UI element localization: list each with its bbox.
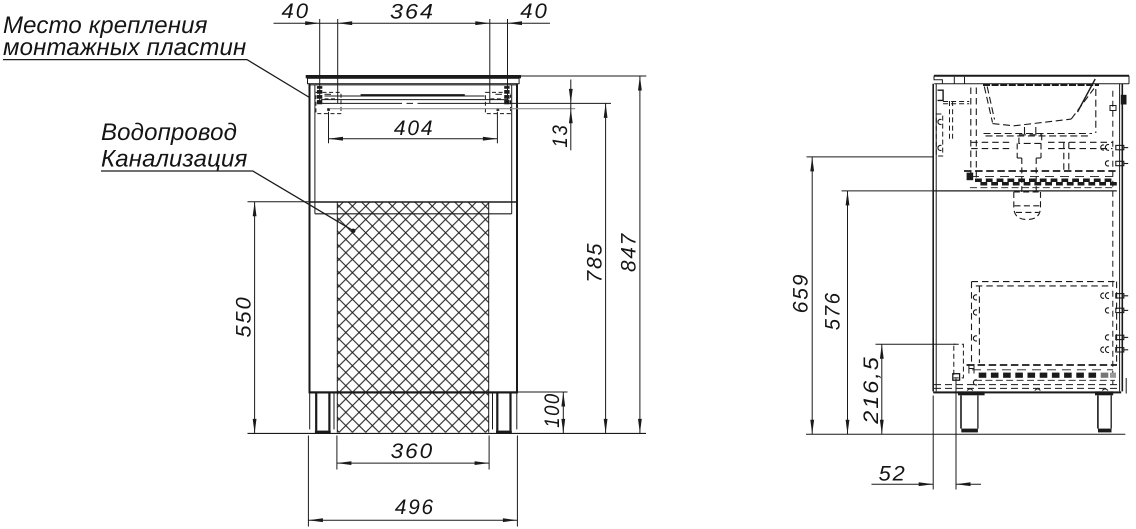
svg-text:785: 785 xyxy=(584,242,607,283)
svg-text:40: 40 xyxy=(282,0,311,23)
svg-text:550: 550 xyxy=(233,296,256,338)
svg-text:Канализация: Канализация xyxy=(101,146,247,173)
svg-text:216,5: 216,5 xyxy=(860,355,883,425)
svg-text:52: 52 xyxy=(879,463,907,486)
svg-text:13: 13 xyxy=(549,124,572,148)
svg-text:659: 659 xyxy=(790,273,813,314)
svg-text:404: 404 xyxy=(394,117,435,140)
svg-text:576: 576 xyxy=(821,291,844,330)
svg-text:монтажных пластин: монтажных пластин xyxy=(3,34,246,61)
svg-text:40: 40 xyxy=(520,0,549,23)
svg-text:100: 100 xyxy=(541,392,564,428)
svg-text:364: 364 xyxy=(390,0,435,23)
svg-text:847: 847 xyxy=(618,232,641,272)
svg-text:496: 496 xyxy=(395,496,435,519)
svg-text:360: 360 xyxy=(391,440,435,463)
svg-text:Водопровод: Водопровод xyxy=(101,119,237,146)
